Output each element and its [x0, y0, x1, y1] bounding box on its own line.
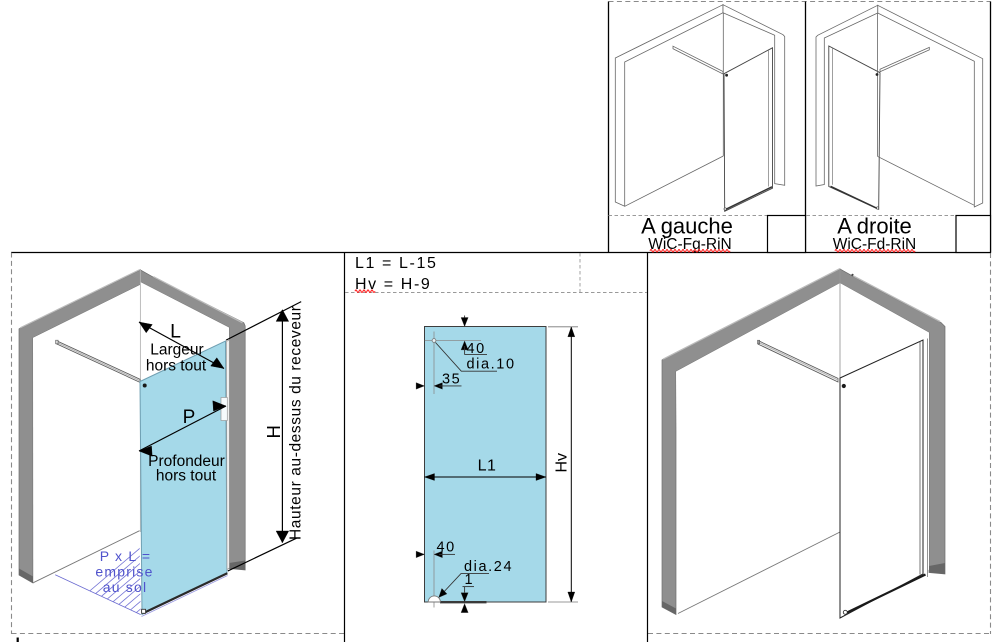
- svg-text:H: H: [263, 425, 284, 438]
- svg-text:Hv: Hv: [554, 453, 571, 473]
- svg-text:P: P: [183, 407, 196, 428]
- svg-text:Hv = H-9: Hv = H-9: [355, 276, 431, 293]
- svg-text:40: 40: [467, 341, 486, 357]
- svg-text:Largeur: Largeur: [150, 342, 203, 359]
- svg-text:au sol: au sol: [103, 579, 148, 595]
- svg-text:35: 35: [442, 372, 461, 388]
- svg-text:L1: L1: [478, 458, 497, 475]
- svg-text:dia.10: dia.10: [467, 357, 516, 373]
- svg-text:L: L: [170, 321, 181, 343]
- svg-text:hors tout: hors tout: [156, 468, 217, 485]
- svg-text:P x L =: P x L =: [100, 548, 152, 564]
- svg-text:L1 = L-15: L1 = L-15: [355, 255, 437, 272]
- svg-text:Hauteur au-dessus du receveur: Hauteur au-dessus du receveur: [288, 305, 305, 540]
- svg-text:hors tout: hors tout: [146, 358, 207, 375]
- svg-text:A droite: A droite: [837, 214, 912, 239]
- svg-text:40: 40: [437, 540, 456, 556]
- svg-text:A gauche: A gauche: [641, 214, 733, 239]
- svg-text:emprise: emprise: [95, 564, 153, 580]
- svg-text:1: 1: [465, 572, 473, 588]
